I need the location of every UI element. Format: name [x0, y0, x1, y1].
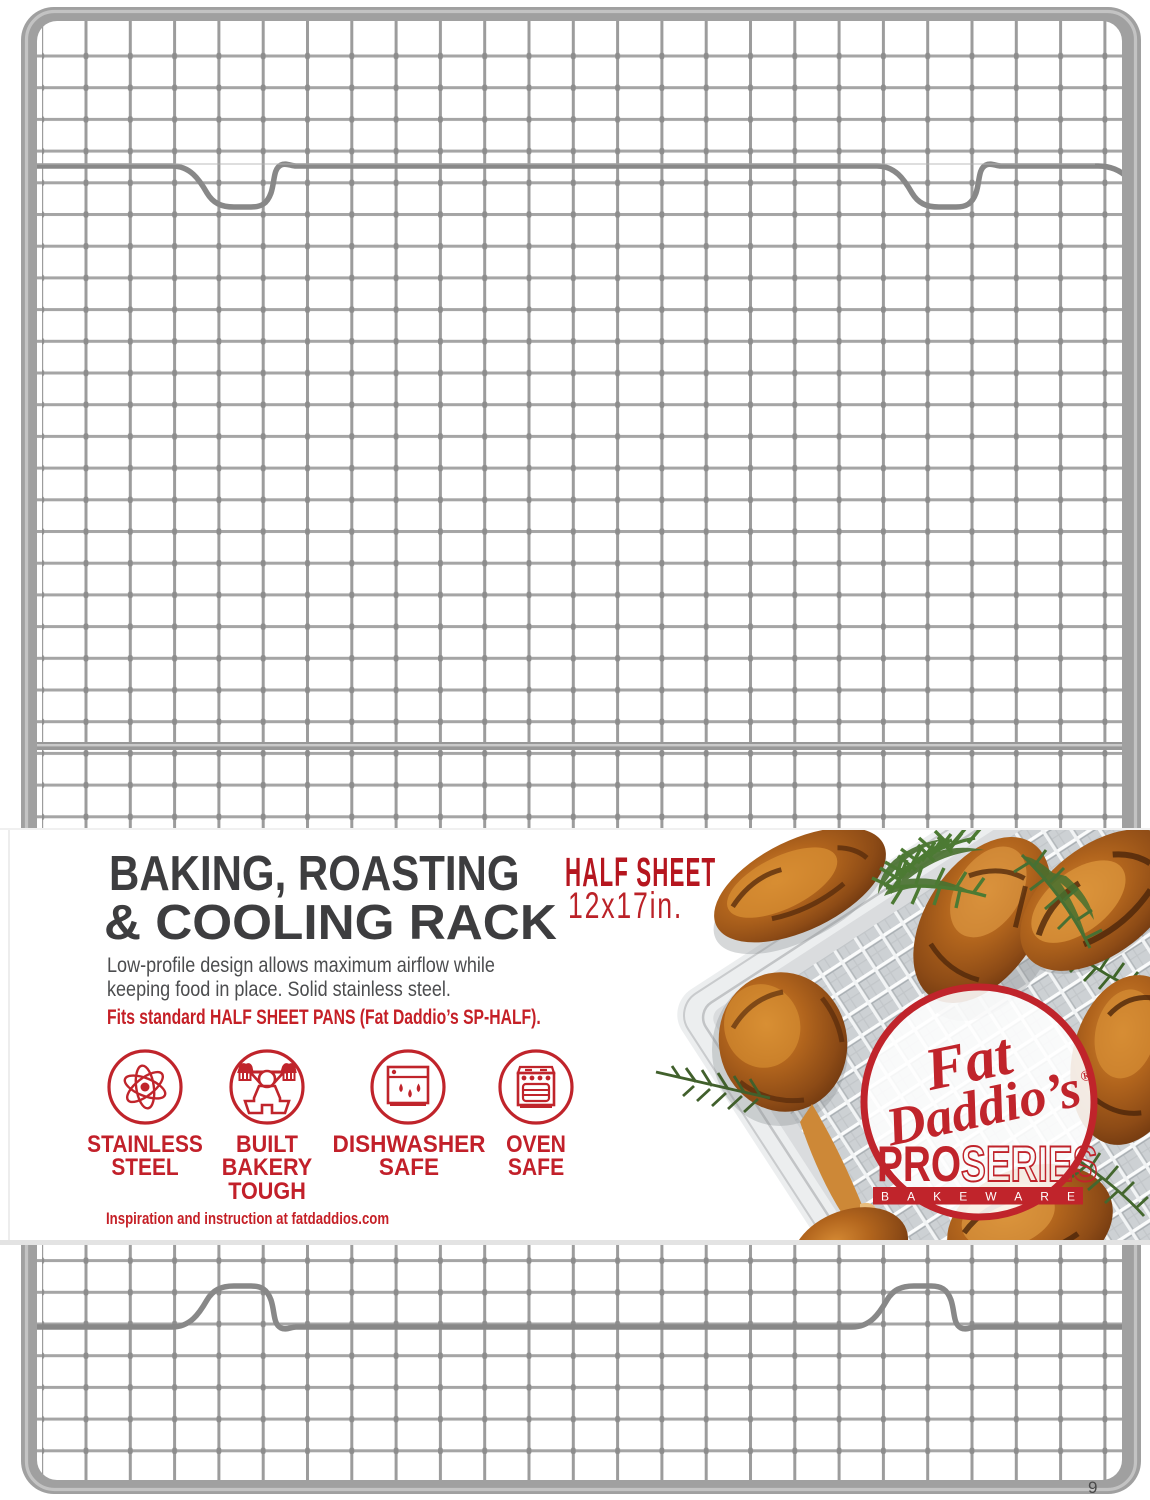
svg-text:SERIES: SERIES: [961, 1137, 1098, 1193]
svg-text:9: 9: [1088, 1478, 1097, 1497]
svg-text:PRO: PRO: [877, 1136, 961, 1192]
